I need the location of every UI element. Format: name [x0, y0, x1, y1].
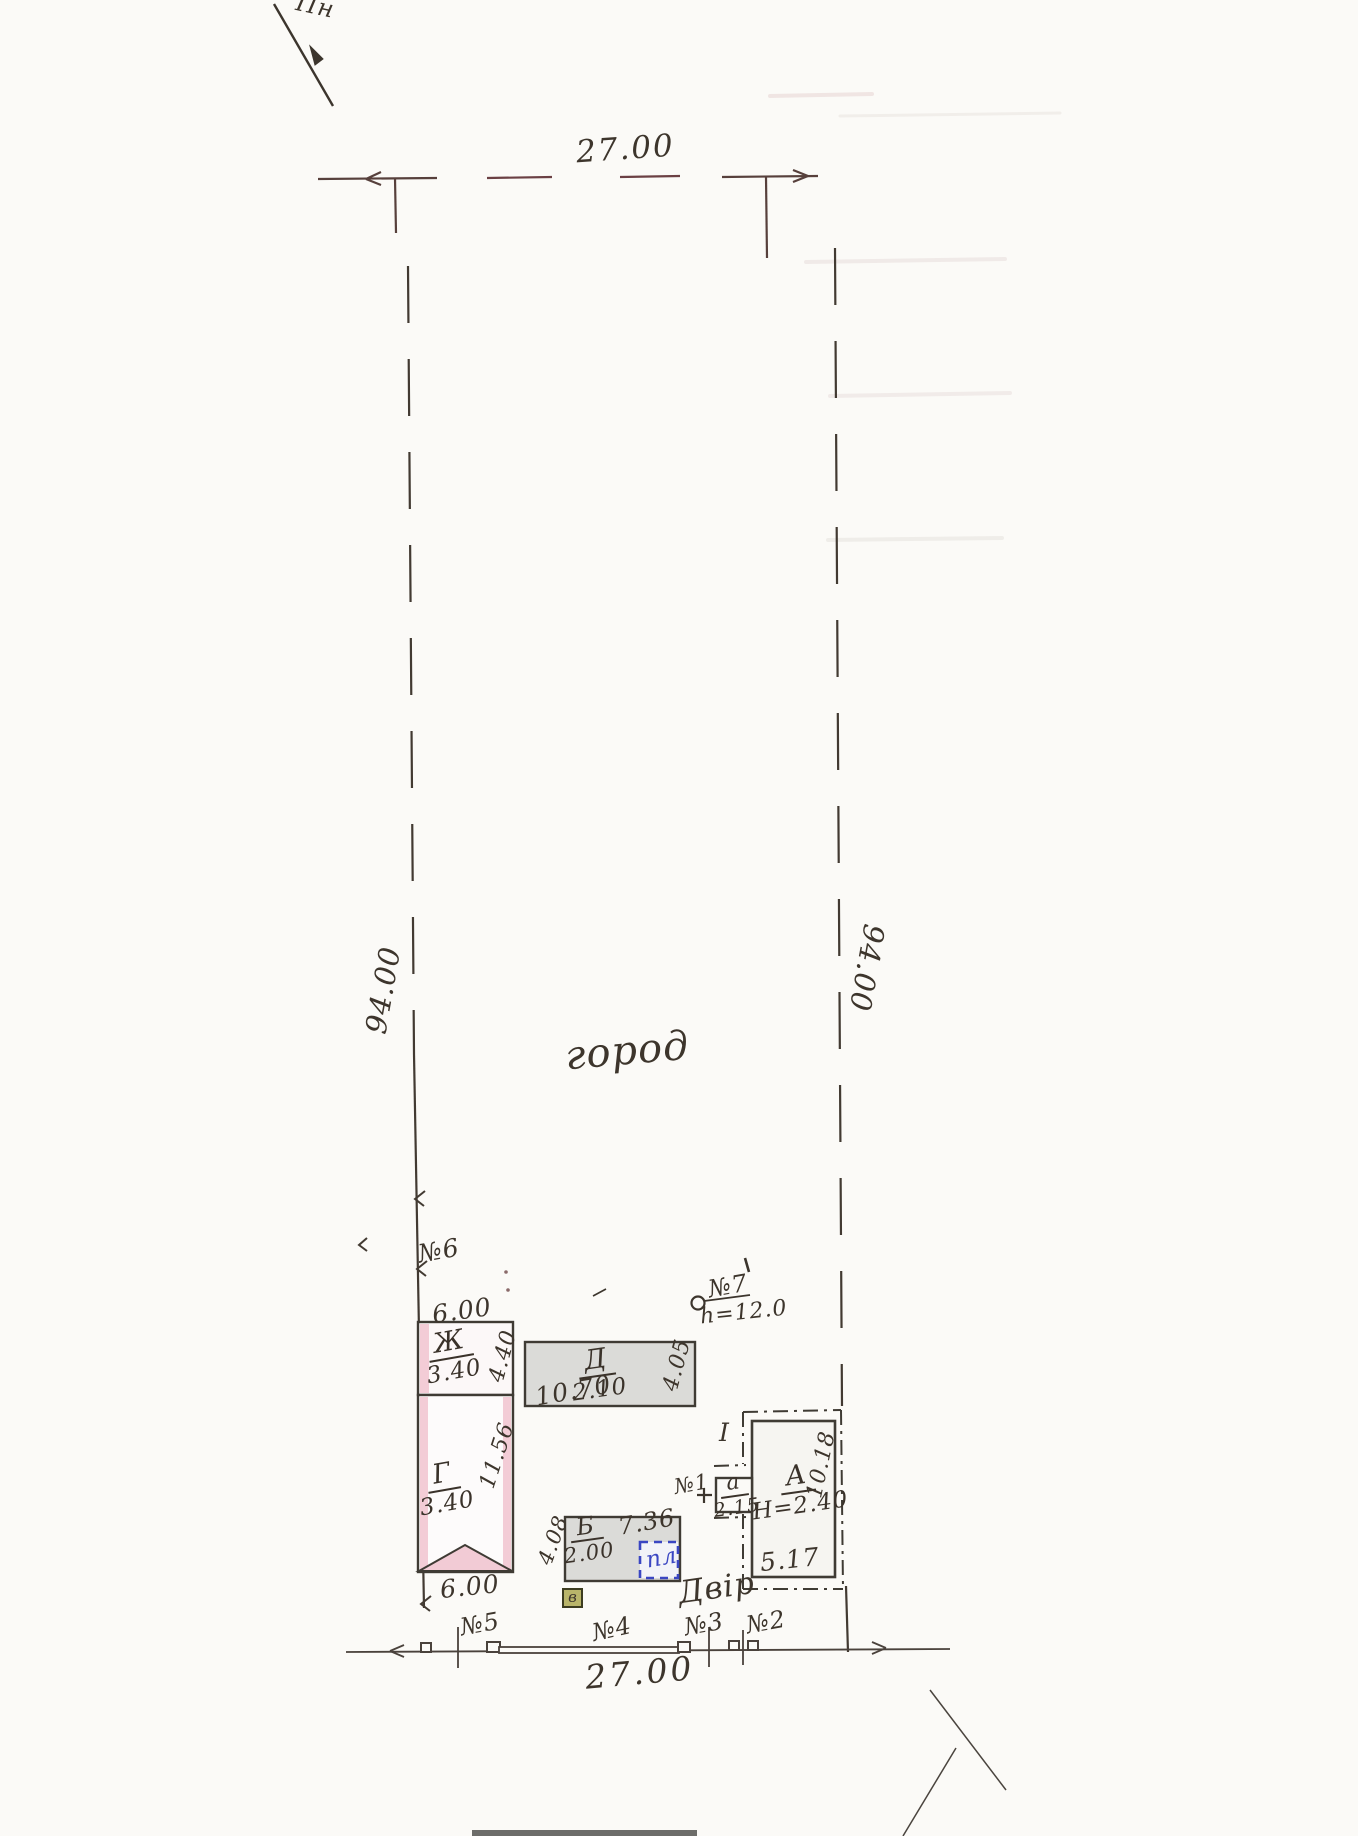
fence-arrow-right-icon — [872, 1642, 886, 1654]
slab-label: пл — [644, 1542, 680, 1573]
plan-linework — [0, 0, 1358, 1836]
building-zh-label: Ж 3.40 — [419, 1324, 483, 1390]
boundary-right-solid — [846, 1586, 848, 1652]
building-g-label: Г 3.40 — [412, 1456, 476, 1522]
scanned-site-plan-page: Пн 27.00 94.00 94.00 город №6 №7 h=12.0 … — [0, 0, 1358, 1836]
structure-v-label: в — [563, 1588, 582, 1606]
boundary-left-dashed — [408, 266, 414, 1054]
building-g-width-label: 6.00 — [439, 1569, 501, 1604]
house-a-section-label: І — [719, 1418, 730, 1447]
stray-marks — [472, 1690, 1006, 1836]
scan-artifacts — [770, 94, 1060, 540]
dim-top-label: 27.00 — [575, 128, 676, 171]
boundary-right-dashed — [835, 248, 842, 1406]
house-a-width-label: 5.17 — [759, 1542, 821, 1577]
dimension-line-top — [318, 170, 818, 258]
